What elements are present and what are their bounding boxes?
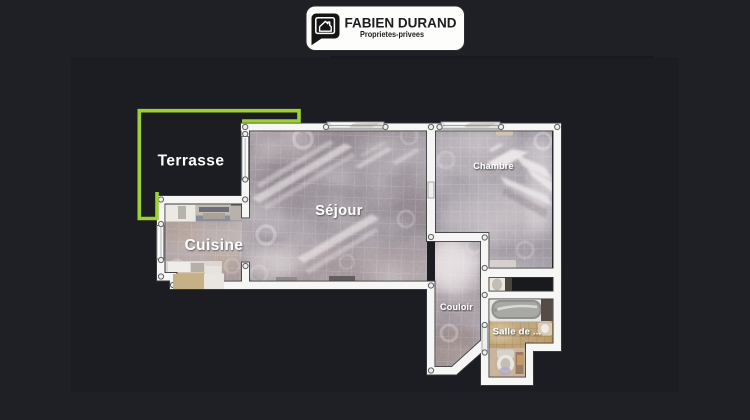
svg-text:Chambre: Chambre (473, 161, 513, 171)
svg-text:FABIEN DURAND: FABIEN DURAND (345, 15, 457, 31)
svg-text:Proprietes-privees: Proprietes-privees (360, 30, 424, 39)
svg-text:Terrasse: Terrasse (158, 153, 225, 170)
svg-text:Séjour: Séjour (315, 203, 363, 219)
svg-text:Cuisine: Cuisine (185, 237, 244, 254)
svg-text:Salle de ...: Salle de ... (493, 327, 542, 338)
svg-text:Couloir: Couloir (440, 302, 473, 312)
